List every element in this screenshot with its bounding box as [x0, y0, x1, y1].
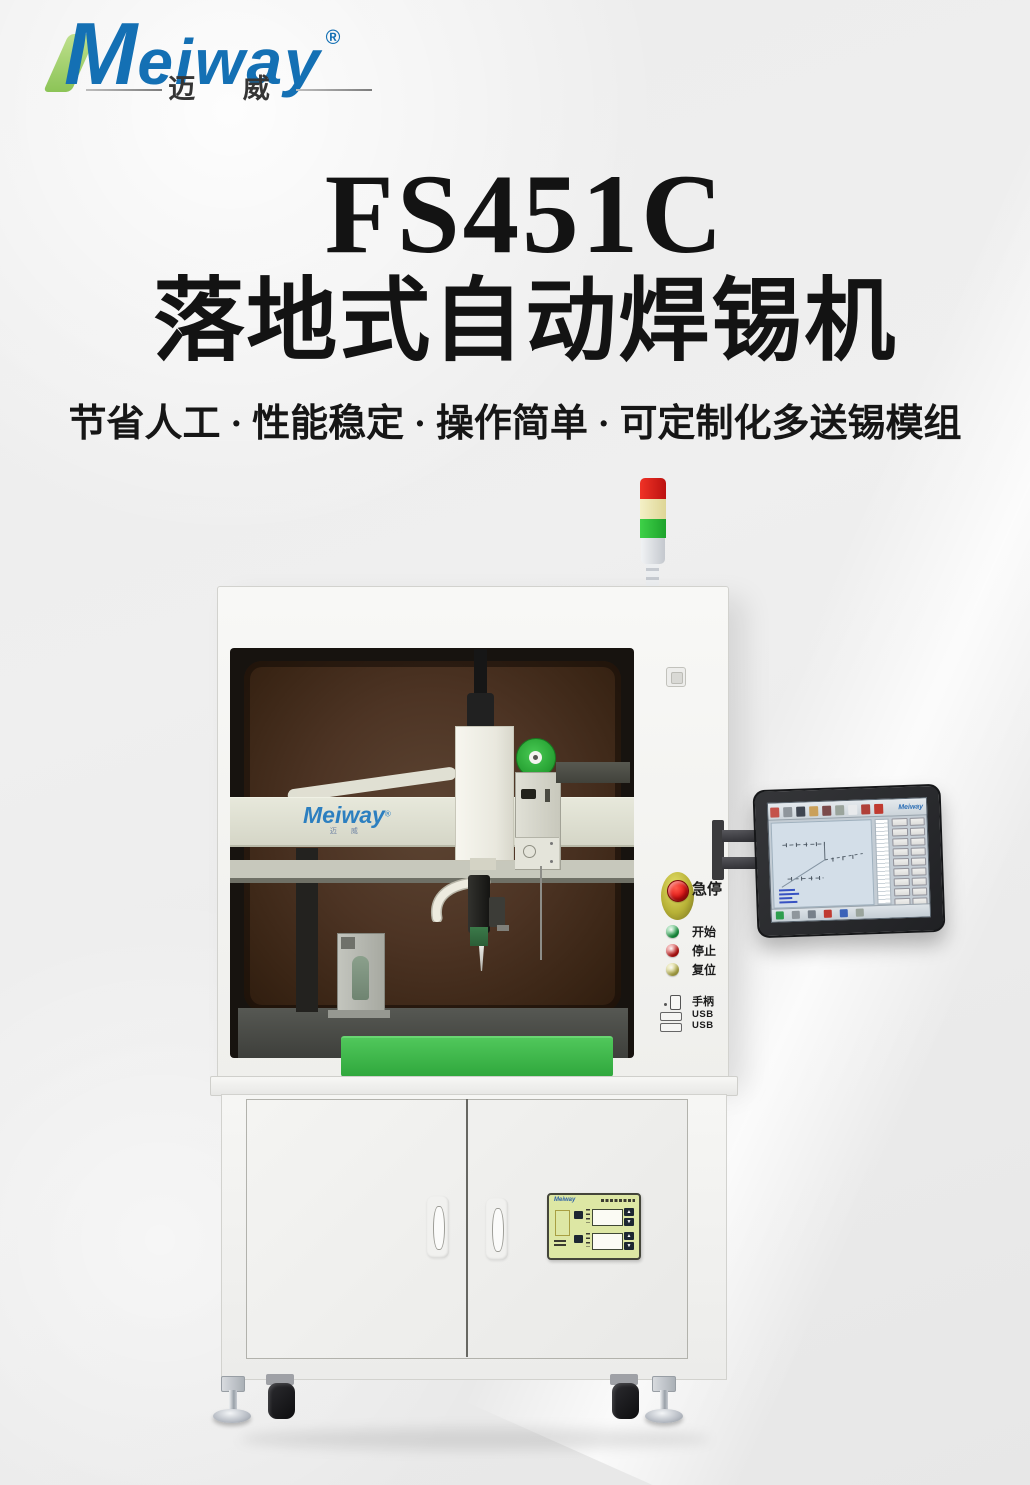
cabinet-panel-brand: Meiway: [554, 1197, 575, 1203]
reset-button-label: 复位: [692, 964, 716, 976]
monitor-button-grid: [892, 817, 928, 902]
monitor-soft-button: [894, 878, 910, 887]
monitor-body: [769, 815, 930, 908]
monitor-soft-button: [892, 828, 908, 837]
monitor-soft-button: [893, 848, 909, 857]
divider-line: [86, 89, 162, 91]
monitor-soft-button: [911, 867, 927, 876]
monitor-toolbar-icon: [783, 806, 792, 816]
caster-wheel: [612, 1383, 639, 1419]
solder-head-body: [468, 875, 490, 933]
estop-button: [667, 880, 689, 902]
monitor-screen: Meiway: [767, 797, 931, 923]
feeder-knob: [521, 789, 536, 799]
gantry-beam: [230, 797, 634, 847]
door-handle-left-slot: [433, 1206, 445, 1250]
monitor-soft-button: [911, 887, 927, 896]
brand-chinese-row: 迈 威: [86, 76, 372, 103]
cabinet-panel-down-button: ▼: [624, 1242, 634, 1250]
monitor-soft-button: [910, 837, 926, 846]
cabinet-panel-title-text: [601, 1199, 635, 1202]
ground-shadow: [240, 1428, 710, 1450]
monitor-soft-button: [892, 818, 908, 827]
cabinet-panel-up-button: ▲: [624, 1208, 634, 1216]
tower-stalk: [646, 562, 659, 589]
gantry-registered: ®: [385, 810, 391, 819]
monitor-bottom-icon: [808, 910, 816, 918]
reel-axle: [533, 755, 538, 760]
stop-button-label: 停止: [692, 945, 716, 957]
monitor-soft-button: [893, 868, 909, 877]
divider-line: [296, 89, 372, 91]
cabinet-panel-down-button: ▼: [624, 1218, 634, 1226]
tower-light-yellow: [640, 498, 666, 519]
gantry-brand: Meiway: [303, 802, 385, 828]
monitor-bottom-icon: [776, 911, 784, 919]
cabinet-panel-window: [555, 1210, 570, 1236]
estop-label: 急停: [692, 882, 722, 897]
cabinet-panel-key: [574, 1235, 583, 1243]
solder-wire: [540, 866, 542, 960]
z-axis-carriage: [455, 726, 514, 861]
monitor-bottom-icon: [840, 909, 848, 917]
tower-light-green: [640, 518, 666, 538]
monitor-soft-button: [911, 877, 927, 886]
monitor-toolbar-icon: [835, 805, 844, 815]
cabinet-control-panel: Meiway ▲ ▼ ▲ ▼: [547, 1193, 641, 1260]
power-switch-inner: [671, 672, 683, 684]
door-divider: [466, 1099, 468, 1357]
product-title: 落地式自动焊锡机: [153, 276, 897, 367]
z-axis-tab: [470, 858, 496, 870]
monitor-toolbar-icon: [822, 805, 831, 815]
monitor-path-drawing: [772, 820, 872, 905]
work-platform: [341, 1036, 613, 1077]
panel-button: [666, 925, 679, 938]
monitor-bottom-icon: [792, 911, 800, 919]
start-button-label: 开始: [692, 926, 716, 938]
caster-wheel: [268, 1383, 295, 1419]
handle-port-dot: [664, 1003, 667, 1006]
door-handle-right-slot: [492, 1208, 504, 1252]
panel-button: [666, 944, 679, 957]
monitor-soft-button: [894, 888, 910, 897]
fixture-notch: [341, 937, 355, 949]
monitor-bezel: Meiway: [752, 784, 945, 938]
monitor-soft-button: [910, 857, 926, 866]
tower-base: [641, 537, 665, 564]
handle-port-icon: [670, 995, 681, 1010]
cabinet-panel-key: [574, 1211, 583, 1219]
cabinet-panel-up-button: ▲: [624, 1232, 634, 1240]
product-model: FS451C: [325, 158, 726, 271]
gantry-brand-chinese: 迈 威: [303, 828, 391, 835]
feeder-guide-ring: [523, 845, 536, 858]
cabinet-panel-display: [592, 1233, 623, 1250]
fixture-bottle: [352, 956, 369, 1000]
monitor-point-list: [875, 819, 892, 905]
monitor-arm-plate: [712, 820, 724, 880]
feeder-screw: [550, 860, 553, 863]
solder-head-clamp: [497, 925, 509, 931]
monitor-soft-button: [893, 858, 909, 867]
feeder-screw: [550, 842, 553, 845]
panel-button: [666, 963, 679, 976]
leveling-foot-base: [645, 1409, 683, 1423]
monitor-brand: Meiway: [898, 803, 923, 811]
poster-page: Meiway® 迈 威 FS451C 落地式自动焊锡机 节省人工 · 性能稳定 …: [0, 0, 1030, 1485]
z-axis-cable: [474, 649, 487, 697]
solder-head-bracket: [489, 897, 505, 927]
gantry-logo: Meiway® 迈 威: [303, 804, 391, 835]
monitor-toolbar-icon: [770, 807, 779, 817]
z-axis-cable-connector: [467, 693, 494, 729]
feeder-slot: [545, 789, 550, 802]
registered-mark: ®: [326, 27, 341, 49]
usb-port-label: USB: [692, 1021, 714, 1031]
monitor-soft-button: [892, 838, 908, 847]
monitor-soft-button: [910, 847, 926, 856]
monitor-toolbar-icons: [768, 802, 885, 817]
cabinet-panel-small-text: [554, 1244, 566, 1246]
monitor-soft-button: [909, 817, 925, 826]
usb-port-label: USB: [692, 1010, 714, 1020]
monitor-bottom-icon: [856, 909, 864, 917]
monitor-toolbar-icon: [809, 806, 818, 816]
monitor-soft-button: [909, 827, 925, 836]
monitor-toolbar-icon: [796, 806, 805, 816]
solder-head-green-section: [470, 927, 488, 946]
leveling-foot-base: [213, 1409, 251, 1423]
monitor-bottom-icon: [824, 910, 832, 918]
usb-port-icon: [660, 1012, 682, 1021]
tower-light-red: [640, 478, 666, 499]
fixture-base: [328, 1010, 390, 1018]
gantry-arm-right: [556, 762, 630, 783]
monitor-toolbar-icon: [861, 804, 870, 814]
cabinet-panel-display: [592, 1209, 623, 1226]
brand-chinese: 迈 威: [168, 76, 290, 103]
product-subtitle: 节省人工 · 性能稳定 · 操作简单 · 可定制化多送锡模组: [68, 403, 961, 447]
handle-port-label: 手柄: [692, 997, 714, 1008]
cabinet-panel-marks: [586, 1233, 590, 1247]
monitor-path-canvas: [771, 819, 875, 908]
monitor-toolbar-icon: [874, 803, 883, 813]
monitor-toolbar-icon: [848, 804, 857, 814]
cabinet-panel-marks: [586, 1209, 590, 1223]
usb-port-icon: [660, 1023, 682, 1032]
cabinet-panel-small-text: [554, 1240, 566, 1242]
counter-band: [210, 1076, 738, 1096]
